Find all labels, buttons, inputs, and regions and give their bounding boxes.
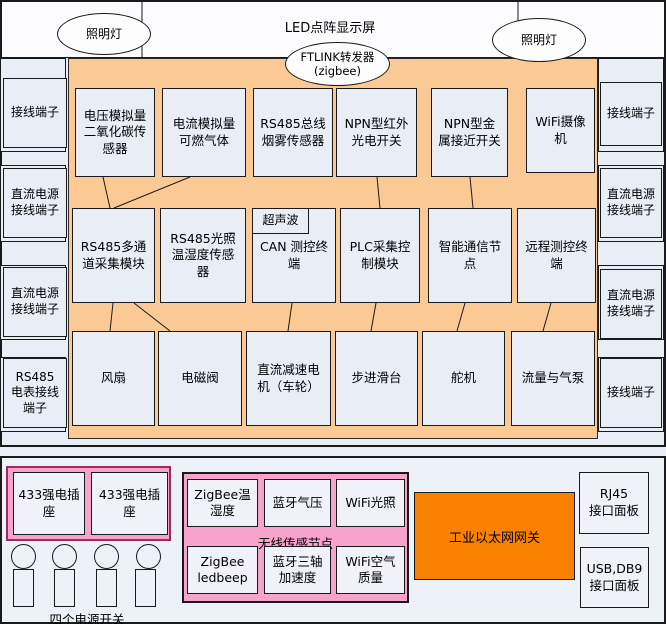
- lamp-right-ellipse: 照明灯: [492, 18, 586, 62]
- power-switch-knob[interactable]: [94, 544, 119, 569]
- power-switch-body[interactable]: [135, 569, 156, 607]
- ftlink-label-line2: (zigbee): [314, 64, 361, 78]
- node-wifi-air-quality: WiFi空气质量: [336, 546, 405, 594]
- device-box-rs485-smoke-sensor: RS485总线烟雾传感器: [253, 88, 333, 177]
- node-wifi-light: WiFi光照: [336, 479, 405, 527]
- usb-label-line2: 接口面板: [589, 578, 639, 595]
- rj45-interface-panel: RJ45 接口面板: [579, 472, 649, 534]
- device-box-smart-comm-node: 智能通信节点: [428, 208, 512, 303]
- accessory-panel-section: 433强电插座 433强电插座 四个电源开关 ZigBee温湿度 蓝牙气压 Wi…: [0, 456, 666, 624]
- device-box-voltage-co2-sensor: 电压模拟量二氧化碳传感器: [75, 88, 155, 177]
- device-box-remote-terminal: 远程测控终端: [517, 208, 596, 303]
- power-switch-body[interactable]: [96, 569, 117, 607]
- device-box-dc-gear-motor: 直流减速电机（车轮）: [246, 331, 331, 426]
- power-switch-body[interactable]: [54, 569, 75, 607]
- device-box-stepper-slide: 步进滑台: [335, 331, 418, 426]
- device-box-servo: 舵机: [422, 331, 505, 426]
- device-box-can-terminal: CAN 测控终端 超声波: [252, 208, 336, 303]
- node-zigbee-ledbeep: ZigBee ledbeep: [187, 546, 258, 594]
- device-box-fan: 风扇: [72, 331, 155, 426]
- lamp-right-label: 照明灯: [521, 33, 557, 48]
- usb-label-line1: USB,DB9: [587, 561, 643, 578]
- usb-db9-interface-panel: USB,DB9 接口面板: [580, 547, 649, 608]
- power-switch-knob[interactable]: [11, 544, 36, 569]
- terminal-box: 直流电源接线端子: [3, 168, 67, 238]
- power-switch-knob[interactable]: [52, 544, 77, 569]
- terminal-box: 直流电源接线端子: [600, 269, 662, 339]
- lamp-left-ellipse: 照明灯: [57, 13, 151, 55]
- device-box-npn-proximity: NPN型金属接近开关: [431, 88, 508, 177]
- led-display-label: LED点阵显示屏: [230, 17, 430, 36]
- device-box-solenoid-valve: 电磁阀: [158, 331, 242, 426]
- node-bluetooth-pressure: 蓝牙气压: [264, 479, 331, 527]
- terminal-box: RS485电表接线端子: [3, 358, 67, 428]
- main-panel-section: LED点阵显示屏 接线端子 直流电源接线端子: [0, 0, 666, 447]
- node-zigbee-temp-humidity: ZigBee温湿度: [187, 479, 258, 527]
- terminal-box: 接线端子: [3, 78, 67, 148]
- device-panel-diagram: LED点阵显示屏 接线端子 直流电源接线端子: [0, 0, 666, 624]
- socket-433-box: 433强电插座: [91, 472, 168, 535]
- power-switch-knob[interactable]: [136, 544, 161, 569]
- ftlink-label-line1: FTLINK转发器: [301, 50, 375, 64]
- rj45-label-line1: RJ45: [600, 486, 628, 503]
- socket-433-box: 433强电插座: [13, 472, 85, 535]
- terminal-box: 接线端子: [600, 82, 662, 146]
- rj45-label-line2: 接口面板: [589, 503, 639, 520]
- power-switch-label: 四个电源开关: [32, 609, 142, 624]
- device-box-rs485-multichannel: RS485多通道采集模块: [72, 208, 155, 303]
- wireless-node-container: ZigBee温湿度 蓝牙气压 WiFi光照 无线传感节点 ZigBee ledb…: [182, 472, 409, 603]
- device-box-wifi-camera: WiFi摄像机: [526, 88, 595, 173]
- node-bluetooth-accel: 蓝牙三轴加速度: [264, 546, 331, 594]
- terminal-box: 直流电源接线端子: [600, 168, 662, 238]
- terminal-box: 直流电源接线端子: [3, 267, 67, 337]
- socket-433-container: 433强电插座 433强电插座: [6, 466, 171, 541]
- device-box-ultrasonic: 超声波: [252, 208, 309, 234]
- device-box-current-gas-sensor: 电流模拟量可燃气体: [162, 88, 246, 177]
- device-box-npn-photoelectric: NPN型红外光电开关: [336, 88, 417, 177]
- lamp-left-label: 照明灯: [86, 27, 122, 42]
- ftlink-repeater-ellipse: FTLINK转发器 (zigbee): [285, 42, 390, 86]
- device-box-plc-module: PLC采集控制模块: [340, 208, 420, 303]
- power-switch-body[interactable]: [13, 569, 34, 607]
- device-box-rs485-light-humidity: RS485光照温湿度传感器: [160, 208, 246, 303]
- device-box-flow-pump: 流量与气泵: [511, 331, 595, 426]
- industrial-ethernet-gateway: 工业以太网网关: [414, 492, 575, 580]
- terminal-box: 接线端子: [600, 358, 662, 428]
